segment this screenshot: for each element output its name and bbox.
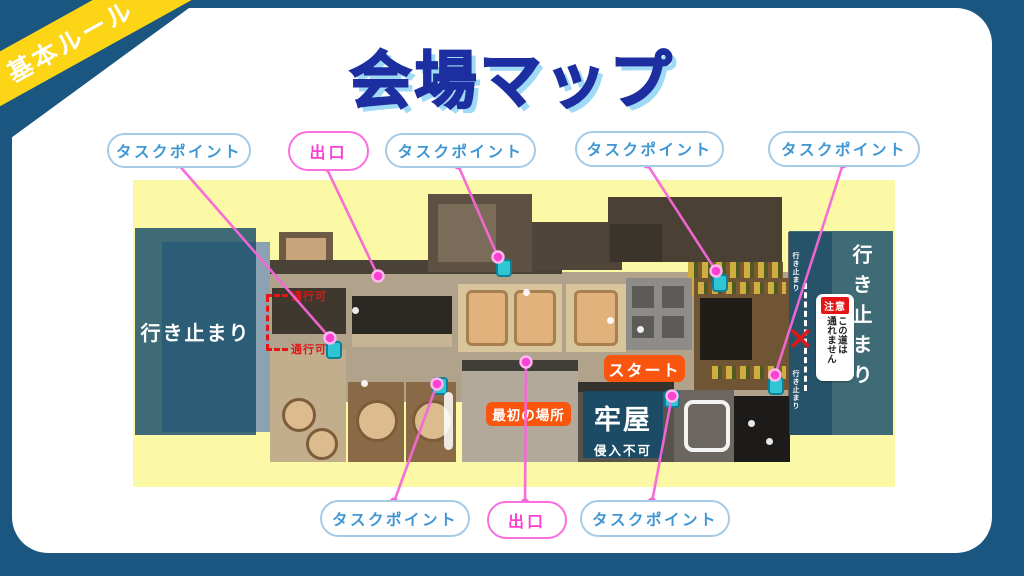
- jail-title: 牢屋: [583, 398, 663, 437]
- map-dot: [607, 317, 614, 324]
- pill-label: 出口: [309, 139, 347, 163]
- passable-bottom-label: 通行可: [291, 341, 327, 357]
- dead-end-left-overlay: 行き止まり: [135, 228, 256, 435]
- map-kitchen-station: [632, 286, 654, 308]
- caution-text-left: 通れません: [824, 316, 835, 378]
- map-table: [514, 290, 556, 346]
- pill-label: タスクポイント: [332, 508, 458, 530]
- pill-label: タスクポイント: [781, 138, 907, 160]
- pill-label: タスクポイント: [592, 508, 718, 530]
- first-place-label: 最初の場所: [492, 404, 565, 424]
- task-point-pill: タスクポイント: [768, 131, 920, 167]
- map-wall: [462, 360, 578, 371]
- map-table: [282, 398, 316, 432]
- pill-label: 出口: [508, 508, 546, 532]
- map-dot: [748, 420, 755, 427]
- map-table: [356, 400, 398, 442]
- start-badge: スタート: [604, 355, 685, 382]
- pill-label: タスクポイント: [586, 138, 712, 160]
- jail-overlay: 牢屋 侵入不可: [583, 391, 663, 458]
- exit-pill: 出口: [487, 501, 567, 539]
- map-counter: [352, 296, 452, 334]
- dead-end-small-bottom-label: 行き止まり: [790, 370, 800, 422]
- first-place-badge: 最初の場所: [486, 402, 571, 426]
- map-kitchen-station: [662, 316, 684, 338]
- task-item-icon: [712, 274, 728, 292]
- dead-end-left-label: 行き止まり: [141, 317, 251, 346]
- task-item-icon: [326, 341, 342, 359]
- slide: 会場マップ: [0, 0, 1024, 576]
- map-block: [700, 298, 752, 360]
- task-point-pill: タスクポイント: [575, 131, 724, 167]
- x-mark: ✕: [787, 320, 814, 358]
- caution-text-right: この道は: [835, 316, 846, 378]
- map-dot: [361, 380, 368, 387]
- passable-dashed-line: [266, 296, 269, 350]
- map-dot: [766, 438, 773, 445]
- task-point-pill: タスクポイント: [107, 133, 251, 168]
- map-table: [466, 290, 508, 346]
- map-kitchen-station: [662, 286, 684, 308]
- task-item-icon: [768, 377, 784, 395]
- map-cell: [684, 400, 730, 452]
- map-counter: [352, 334, 452, 347]
- task-point-pill: タスクポイント: [580, 500, 730, 537]
- exit-pill: 出口: [288, 131, 369, 171]
- passable-dashed-line: [266, 348, 288, 351]
- pill-label: タスクポイント: [116, 140, 242, 162]
- map-table: [306, 428, 338, 460]
- task-point-pill: タスクポイント: [385, 133, 536, 168]
- jail-subtitle: 侵入不可: [583, 440, 663, 459]
- map-block: [610, 224, 662, 262]
- map-dot: [637, 326, 644, 333]
- pill-label: タスクポイント: [397, 140, 523, 162]
- task-item-icon: [664, 390, 680, 408]
- caution-badge: 注意: [821, 297, 849, 314]
- caution-text: 通れません この道は: [824, 316, 846, 378]
- map-block: [734, 396, 790, 462]
- map-rail: [444, 392, 453, 450]
- caution-note: 注意 通れません この道は: [816, 294, 854, 381]
- map-dot: [352, 307, 359, 314]
- task-item-icon: [496, 259, 512, 277]
- passable-dashed-line: [266, 294, 288, 297]
- task-point-pill: タスクポイント: [320, 500, 470, 537]
- passable-top-label: 通行可: [291, 288, 327, 304]
- map-dot: [523, 289, 530, 296]
- map-block: [438, 204, 496, 262]
- dead-end-small-top-label: 行き止まり: [790, 252, 800, 304]
- start-label: スタート: [608, 357, 680, 381]
